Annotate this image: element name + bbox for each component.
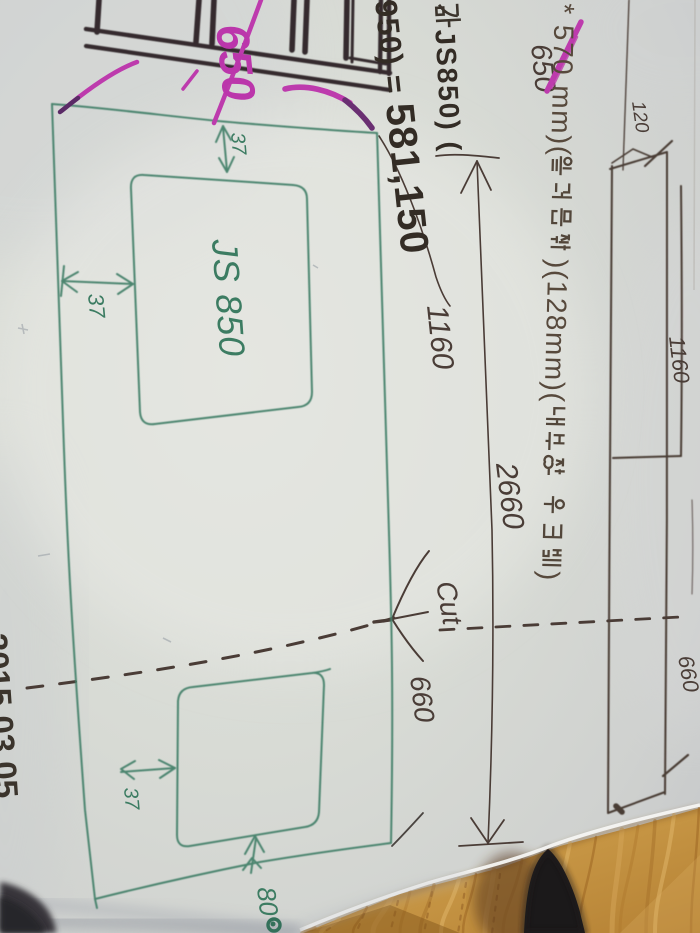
svg-text:37: 37 bbox=[83, 292, 110, 319]
svg-text:JS850) (: JS850) ( bbox=[429, 29, 466, 154]
svg-text:37: 37 bbox=[226, 132, 250, 157]
svg-text:1160: 1160 bbox=[420, 303, 460, 371]
svg-text:* 570 mm)(: * 570 mm)( bbox=[545, 3, 580, 157]
svg-text:JS 850: JS 850 bbox=[204, 237, 253, 359]
svg-text:80: 80 bbox=[251, 885, 284, 918]
svg-text:650: 650 bbox=[206, 22, 266, 104]
svg-text:)(128mm)(: )(128mm)( bbox=[539, 259, 574, 404]
svg-text:37: 37 bbox=[119, 787, 143, 812]
svg-text:660: 660 bbox=[404, 674, 441, 725]
svg-text:): ) bbox=[534, 571, 565, 581]
svg-text:120: 120 bbox=[627, 100, 652, 135]
